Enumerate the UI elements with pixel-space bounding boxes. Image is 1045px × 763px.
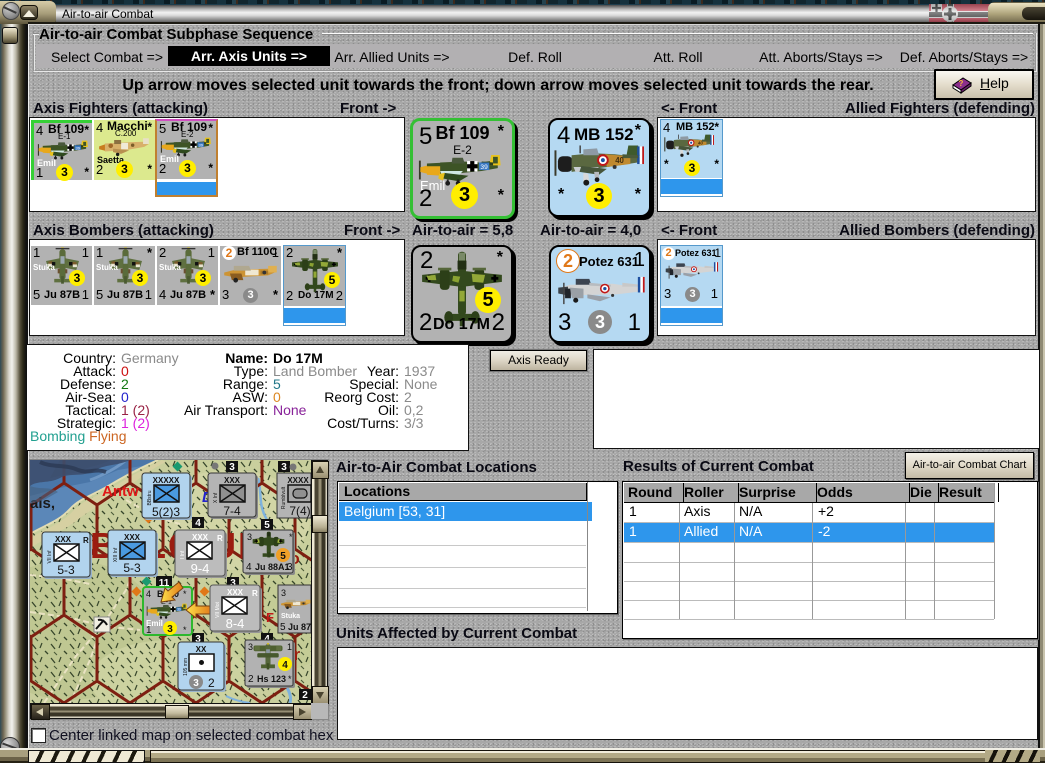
svg-text:XXXXX: XXXXX bbox=[153, 476, 180, 485]
svg-text:3: 3 bbox=[247, 532, 252, 542]
svg-text:Stuka: Stuka bbox=[281, 613, 300, 620]
svg-text:XXX: XXX bbox=[192, 533, 209, 542]
svg-text:VII Inf: VII Inf bbox=[47, 550, 53, 564]
svg-text:7(4): 7(4) bbox=[289, 504, 310, 518]
svg-text:XX: XX bbox=[196, 645, 207, 654]
svg-text:*: * bbox=[288, 674, 292, 684]
svg-text:3: 3 bbox=[287, 562, 293, 573]
svg-text:R: R bbox=[252, 589, 258, 598]
svg-text:XIII Inf: XIII Inf bbox=[113, 547, 119, 562]
svg-text:R: R bbox=[217, 534, 223, 543]
svg-text:2: 2 bbox=[248, 674, 254, 685]
svg-text:BBstru: BBstru bbox=[147, 490, 153, 505]
svg-text:Antw: Antw bbox=[102, 483, 139, 500]
svg-text:5: 5 bbox=[280, 551, 286, 562]
svg-text:3: 3 bbox=[229, 462, 235, 473]
svg-text:5: 5 bbox=[264, 520, 270, 531]
svg-text:*: * bbox=[183, 589, 187, 599]
svg-text:VII Mot: VII Mot bbox=[215, 601, 221, 617]
svg-text:2: 2 bbox=[208, 676, 215, 690]
svg-text:3: 3 bbox=[167, 624, 173, 635]
svg-text:3: 3 bbox=[281, 462, 287, 473]
svg-text:XXX: XXX bbox=[124, 533, 141, 542]
svg-text:Ju 87: Ju 87 bbox=[288, 622, 311, 632]
svg-text:9-4: 9-4 bbox=[191, 561, 210, 576]
svg-text:I Inf: I Inf bbox=[180, 550, 186, 559]
svg-text:Hs 123: Hs 123 bbox=[257, 674, 286, 684]
svg-text:?: ? bbox=[959, 79, 964, 88]
svg-text:3: 3 bbox=[248, 642, 253, 652]
svg-text:105 mm: 105 mm bbox=[183, 658, 189, 676]
svg-text:5: 5 bbox=[280, 622, 286, 633]
svg-text:XXX: XXX bbox=[227, 588, 244, 597]
svg-text:1: 1 bbox=[287, 642, 292, 652]
svg-text:Ju 88A1: Ju 88A1 bbox=[255, 562, 290, 572]
svg-text:5-3: 5-3 bbox=[57, 563, 75, 577]
svg-text:4: 4 bbox=[195, 518, 201, 529]
svg-text:8-4: 8-4 bbox=[226, 616, 245, 631]
svg-text:4: 4 bbox=[246, 562, 252, 573]
svg-text:*: * bbox=[183, 625, 187, 635]
svg-text:1: 1 bbox=[146, 625, 152, 636]
svg-text:3: 3 bbox=[193, 678, 199, 689]
svg-text:4: 4 bbox=[146, 589, 151, 599]
svg-text:4: 4 bbox=[282, 660, 288, 671]
svg-text:5(2)3: 5(2)3 bbox=[152, 505, 180, 519]
svg-text:R: R bbox=[83, 536, 89, 545]
svg-text:X Inf: X Inf bbox=[213, 492, 219, 503]
svg-text:*: * bbox=[289, 532, 293, 542]
svg-text:2: 2 bbox=[302, 690, 308, 701]
svg-text:F: F bbox=[266, 610, 274, 625]
svg-text:XXXX: XXXX bbox=[287, 476, 309, 485]
svg-text:7-4: 7-4 bbox=[223, 504, 241, 518]
svg-text:Rumblvult: Rumblvult bbox=[281, 486, 287, 509]
svg-text:3: 3 bbox=[281, 588, 286, 598]
svg-text:XXX: XXX bbox=[55, 535, 72, 544]
svg-text:XXX: XXX bbox=[224, 476, 241, 485]
svg-text:5-3: 5-3 bbox=[123, 561, 141, 575]
